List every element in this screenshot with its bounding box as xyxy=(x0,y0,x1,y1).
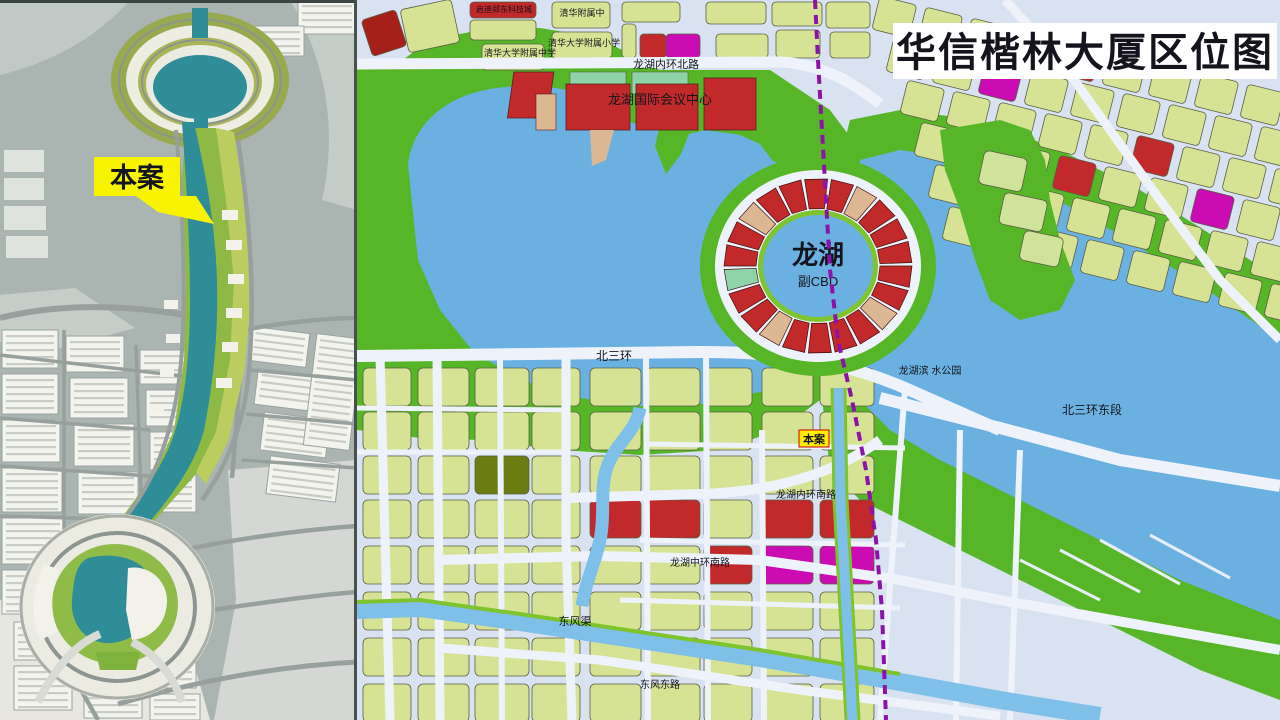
svg-text:龙湖内环南路: 龙湖内环南路 xyxy=(776,488,836,501)
svg-text:北三环东段: 北三环东段 xyxy=(1062,402,1122,417)
svg-text:清华大学附属中学: 清华大学附属中学 xyxy=(484,47,556,58)
svg-text:龙湖滨 水公园: 龙湖滨 水公园 xyxy=(899,364,962,377)
svg-text:龙湖内环北路: 龙湖内环北路 xyxy=(633,57,699,71)
svg-text:清华大学附属小学: 清华大学附属小学 xyxy=(548,37,620,48)
svg-text:龙湖中环南路: 龙湖中环南路 xyxy=(670,556,730,569)
svg-text:华信楷林大厦区位图: 华信楷林大厦区位图 xyxy=(896,31,1274,75)
svg-text:本案: 本案 xyxy=(110,162,165,193)
svg-text:东风渠: 东风渠 xyxy=(559,615,592,628)
svg-text:东风东路: 东风东路 xyxy=(640,678,680,691)
svg-text:本案: 本案 xyxy=(803,432,826,446)
svg-text:北三环: 北三环 xyxy=(596,349,632,363)
svg-text:启迪郑东科技城: 启迪郑东科技城 xyxy=(476,4,532,14)
svg-text:清华附属中: 清华附属中 xyxy=(559,7,604,18)
svg-text:龙湖: 龙湖 xyxy=(792,240,844,270)
svg-text:龙湖国际会议中心: 龙湖国际会议中心 xyxy=(608,92,712,107)
